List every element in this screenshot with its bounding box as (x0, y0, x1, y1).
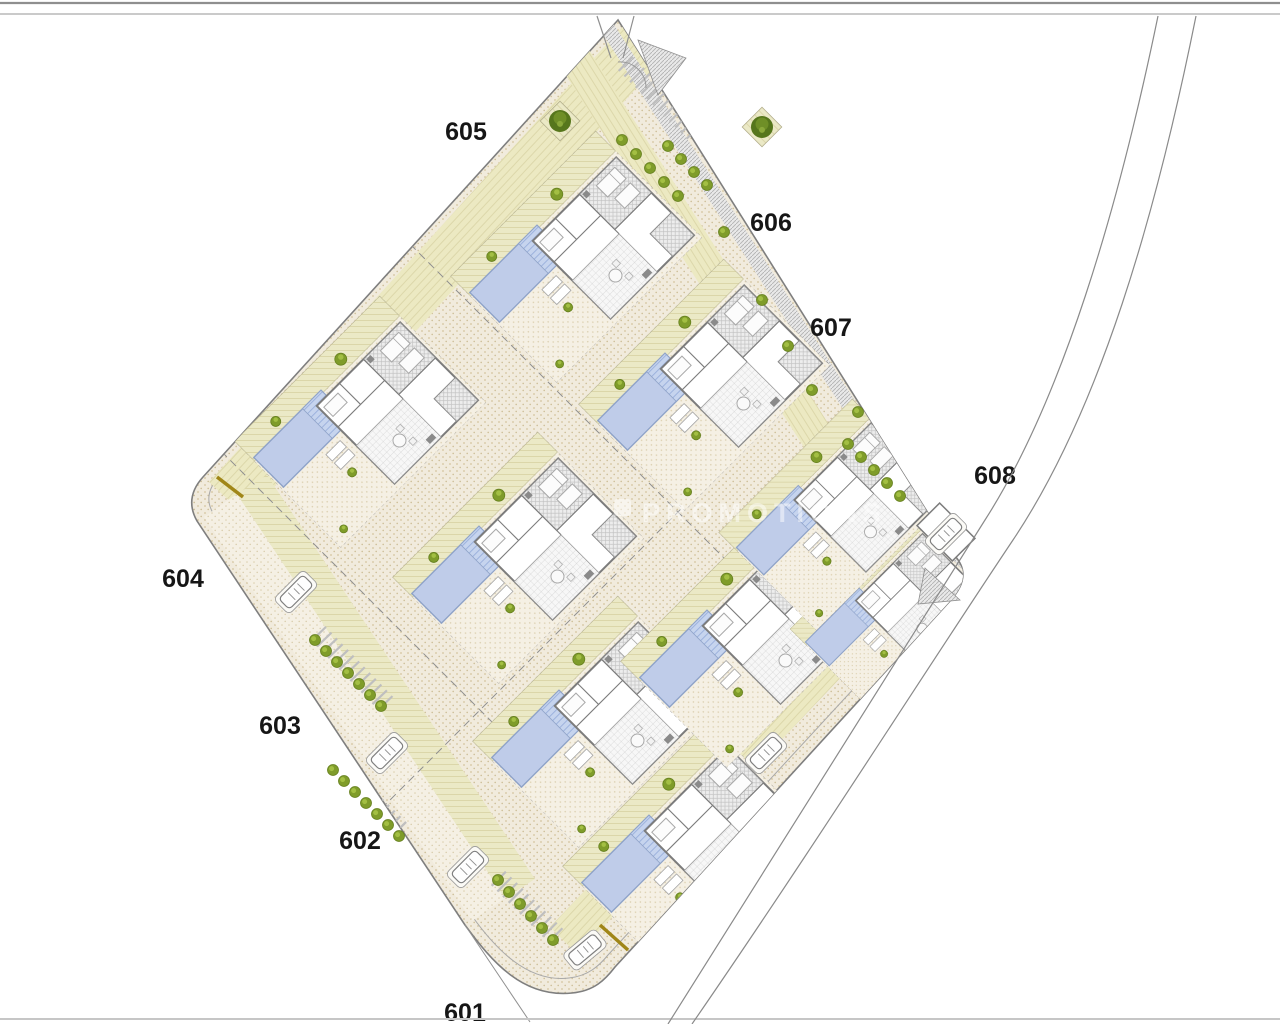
bush (645, 163, 656, 174)
site-plan-drawing: 601602603604605606607608 PROMOTIONS (0, 0, 1280, 1024)
watermark-logo-icon (614, 499, 631, 516)
bush-highlight (758, 296, 763, 301)
plot-label-608: 608 (974, 462, 1016, 490)
bush-highlight (340, 777, 345, 782)
bush-highlight (373, 810, 378, 815)
plot-label-601: 601 (444, 999, 486, 1024)
bush (882, 478, 893, 489)
plot-label-605: 605 (445, 118, 487, 146)
bush (365, 690, 376, 701)
bush-highlight (505, 888, 510, 893)
bush-highlight (384, 821, 389, 826)
bush-highlight (844, 440, 849, 445)
bush-highlight (395, 832, 400, 837)
bush-highlight (618, 136, 623, 141)
bush (504, 887, 515, 898)
bush-highlight (690, 168, 695, 173)
bush-highlight (784, 342, 789, 347)
bush (869, 465, 880, 476)
bush-highlight (808, 386, 813, 391)
bush-highlight (646, 164, 651, 169)
bush-highlight (366, 691, 371, 696)
bush-highlight (857, 453, 862, 458)
bush-highlight (322, 647, 327, 652)
bush-highlight (538, 924, 543, 929)
bush-highlight (632, 150, 637, 155)
bush (350, 787, 361, 798)
bush (526, 911, 537, 922)
bush-highlight (344, 669, 349, 674)
bush-highlight (674, 192, 679, 197)
bush (493, 875, 504, 886)
bush (631, 149, 642, 160)
plot-label-602: 602 (339, 827, 381, 855)
bush (807, 385, 818, 396)
bush-highlight (703, 181, 708, 186)
bush-highlight (333, 658, 338, 663)
plot-label-603: 603 (259, 712, 301, 740)
bush (689, 167, 700, 178)
bush (354, 679, 365, 690)
bush (676, 154, 687, 165)
plot-label-604: 604 (162, 565, 204, 593)
bush (383, 820, 394, 831)
bush-highlight (494, 876, 499, 881)
bush-highlight (870, 466, 875, 471)
bush (328, 765, 339, 776)
site-plan-page: 601602603604605606607608 PROMOTIONS (0, 0, 1280, 1024)
bush (719, 227, 730, 238)
bush-highlight (677, 155, 682, 160)
bush-highlight (527, 912, 532, 917)
bush (659, 177, 670, 188)
bush (843, 439, 854, 450)
bush-highlight (660, 178, 665, 183)
bush-highlight (664, 142, 669, 147)
bush (702, 180, 713, 191)
bush-highlight (883, 479, 888, 484)
bush (376, 701, 387, 712)
bush (617, 135, 628, 146)
plot-label-607: 607 (810, 314, 852, 342)
bush (515, 899, 526, 910)
bush-highlight (351, 788, 356, 793)
bush-highlight (355, 680, 360, 685)
watermark-text: PROMOTIONS (642, 498, 887, 528)
bush (343, 668, 354, 679)
plot-label-606: 606 (750, 209, 792, 237)
bush (339, 776, 350, 787)
bush (853, 407, 864, 418)
bush-highlight (896, 492, 901, 497)
bush (895, 491, 906, 502)
bush-highlight (329, 766, 334, 771)
bush (757, 295, 768, 306)
bush (673, 191, 684, 202)
bush (394, 831, 405, 842)
bush-highlight (720, 228, 725, 233)
bush (856, 452, 867, 463)
bush (663, 141, 674, 152)
bush-highlight (516, 900, 521, 905)
bush (548, 935, 559, 946)
bush-highlight (377, 702, 382, 707)
bush (372, 809, 383, 820)
bush-highlight (311, 636, 316, 641)
bush-highlight (854, 408, 859, 413)
bush (783, 341, 794, 352)
watermark: PROMOTIONS (614, 498, 887, 528)
bush-highlight (549, 936, 554, 941)
bush (310, 635, 321, 646)
bush (361, 798, 372, 809)
bush (321, 646, 332, 657)
bush (332, 657, 343, 668)
bush-highlight (362, 799, 367, 804)
bush (537, 923, 548, 934)
